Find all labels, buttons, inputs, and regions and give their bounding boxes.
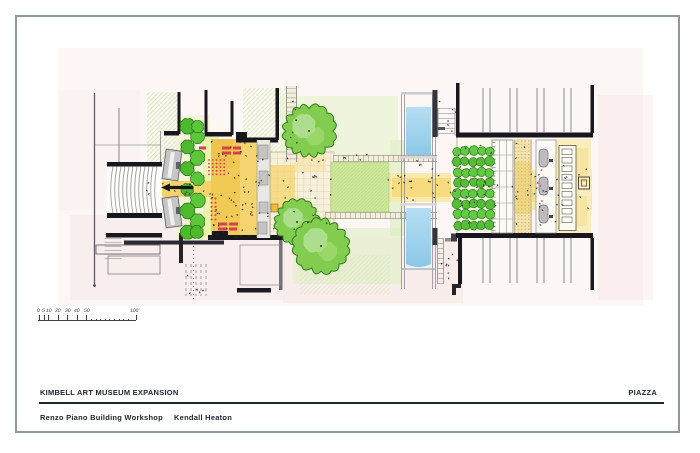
grove-tree bbox=[485, 210, 494, 219]
grove-tree bbox=[476, 157, 485, 166]
sheet-name: PIAZZA bbox=[628, 388, 657, 397]
project-title: KIMBELL ART MUSEUM EXPANSION bbox=[40, 388, 179, 397]
gallery-strip bbox=[536, 140, 556, 233]
pool-lower bbox=[406, 208, 431, 267]
grove-tree bbox=[461, 220, 471, 230]
scale-tick-label: 20 bbox=[55, 308, 61, 314]
grove-tree bbox=[469, 146, 478, 156]
grove-tree bbox=[485, 199, 495, 209]
piazza-plan-drawing bbox=[0, 0, 700, 453]
scale-tick-label: 50 bbox=[84, 308, 90, 314]
grove-tree bbox=[469, 167, 478, 176]
grove-tree bbox=[485, 178, 494, 187]
grove-tree bbox=[452, 199, 461, 209]
grove-tree bbox=[468, 189, 477, 198]
scale-end-label: 100' bbox=[130, 308, 140, 314]
central-lawn bbox=[331, 162, 389, 212]
grove-tree bbox=[486, 189, 495, 198]
scale-baseline bbox=[38, 320, 136, 321]
associate-architect-name: Kendall Heaton bbox=[174, 413, 232, 422]
allee-tree bbox=[192, 120, 204, 132]
scale-tick-label: 30 bbox=[65, 308, 71, 314]
grove-tree bbox=[486, 147, 495, 156]
person-dot bbox=[527, 194, 529, 195]
scale-bar: 0 5 10 20 30 40 50 100' bbox=[38, 308, 148, 326]
bench-strip bbox=[257, 140, 270, 238]
grove-tree bbox=[485, 156, 495, 166]
grove-tree bbox=[469, 210, 478, 220]
grove-tree bbox=[476, 178, 485, 187]
grove-tree bbox=[484, 220, 493, 230]
cobble-strip bbox=[515, 140, 532, 233]
terrace-kiosk bbox=[271, 204, 278, 212]
auditorium-stair bbox=[107, 162, 162, 218]
scale-tick-label: 0 bbox=[37, 308, 41, 314]
grove-tree bbox=[460, 179, 468, 187]
architect-name: Renzo Piano Building Workshop bbox=[40, 413, 163, 422]
grove-tree bbox=[478, 147, 487, 156]
grove-tree bbox=[469, 199, 478, 208]
grove-tree bbox=[460, 146, 469, 155]
pool-upper bbox=[406, 107, 431, 155]
grove-tree bbox=[477, 199, 486, 208]
grove-tree bbox=[453, 147, 461, 156]
scale-tick-label: 10 bbox=[46, 308, 52, 314]
person-dot bbox=[292, 131, 293, 133]
scale-tick-label: 40 bbox=[74, 308, 80, 314]
grove-tree bbox=[452, 157, 461, 167]
glass-canopy bbox=[492, 140, 513, 233]
title-rule bbox=[39, 402, 664, 404]
